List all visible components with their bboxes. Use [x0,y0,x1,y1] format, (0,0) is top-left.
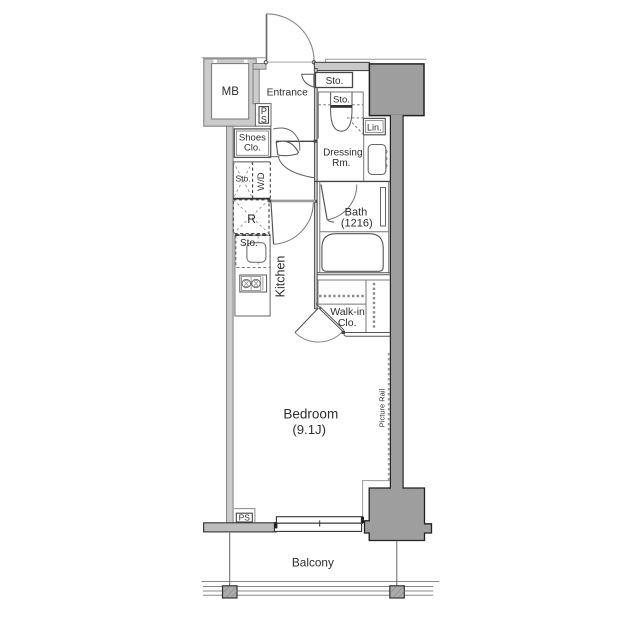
svg-text:Entrance: Entrance [267,88,308,99]
svg-text:Clo.: Clo. [244,142,261,153]
svg-text:Sto.: Sto. [235,174,250,184]
svg-text:MB: MB [222,86,240,98]
svg-text:W/D: W/D [256,172,267,191]
svg-text:Rm.: Rm. [332,158,350,169]
svg-text:Sto.: Sto. [333,95,350,106]
svg-text:Sto.: Sto. [240,238,258,249]
svg-text:(1216): (1216) [341,217,373,229]
svg-text:Lin.: Lin. [367,123,382,133]
svg-text:R: R [247,212,256,226]
svg-text:Balcony: Balcony [292,556,334,570]
svg-text:Picture Rail: Picture Rail [378,389,387,428]
svg-text:S: S [261,115,267,125]
svg-text:Bedroom: Bedroom [283,406,338,421]
svg-text:PS: PS [239,513,251,523]
svg-text:Kitchen: Kitchen [274,256,288,298]
svg-text:Sto.: Sto. [326,76,344,87]
svg-text:(9.1J): (9.1J) [292,422,326,437]
